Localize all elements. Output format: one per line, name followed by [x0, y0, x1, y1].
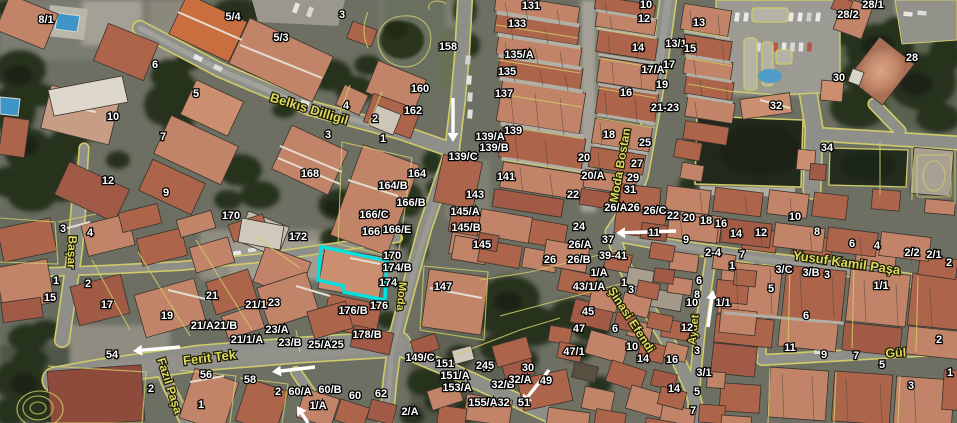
svg-text:1: 1: [621, 277, 627, 289]
svg-text:12: 12: [638, 13, 650, 25]
svg-text:2/A: 2/A: [401, 406, 418, 418]
svg-text:149/C: 149/C: [405, 352, 434, 364]
svg-text:153/A: 153/A: [442, 382, 471, 394]
svg-text:32/A: 32/A: [508, 374, 531, 386]
svg-text:10: 10: [107, 111, 119, 123]
svg-text:145: 145: [473, 239, 491, 251]
svg-text:21: 21: [206, 290, 218, 302]
svg-text:25: 25: [639, 137, 651, 149]
svg-text:56: 56: [200, 369, 212, 381]
svg-text:23/A: 23/A: [265, 324, 288, 336]
svg-text:51: 51: [518, 397, 530, 409]
svg-text:3: 3: [339, 9, 345, 21]
svg-text:4: 4: [874, 240, 881, 252]
svg-text:54: 54: [106, 349, 119, 361]
svg-text:139/C: 139/C: [448, 151, 477, 163]
svg-text:17: 17: [101, 299, 113, 311]
svg-text:1: 1: [53, 275, 59, 287]
svg-text:26/A: 26/A: [568, 239, 591, 251]
svg-text:16: 16: [620, 87, 632, 99]
svg-text:10: 10: [789, 211, 801, 223]
svg-text:1/1: 1/1: [715, 297, 730, 309]
svg-text:145/B: 145/B: [451, 222, 480, 234]
svg-text:172: 172: [289, 231, 307, 243]
svg-text:26/B: 26/B: [567, 254, 590, 266]
svg-text:164: 164: [408, 168, 427, 180]
svg-text:11: 11: [784, 342, 796, 354]
svg-text:28/2: 28/2: [837, 9, 858, 21]
svg-text:2/1: 2/1: [926, 249, 941, 261]
svg-text:14: 14: [632, 42, 645, 54]
svg-text:164/B: 164/B: [378, 180, 407, 192]
svg-text:6: 6: [849, 238, 855, 250]
svg-text:2/2: 2/2: [904, 247, 919, 259]
svg-text:30: 30: [833, 72, 845, 84]
svg-text:2: 2: [372, 113, 378, 125]
svg-text:15: 15: [684, 43, 696, 55]
svg-text:12: 12: [755, 227, 767, 239]
svg-text:137: 137: [495, 88, 513, 100]
svg-text:1/A: 1/A: [590, 267, 607, 279]
svg-text:30: 30: [522, 362, 534, 374]
svg-text:9: 9: [821, 349, 827, 361]
svg-text:19: 19: [656, 79, 668, 91]
svg-text:2: 2: [946, 257, 952, 269]
svg-text:Gül: Gül: [885, 345, 907, 360]
svg-text:1: 1: [380, 133, 386, 145]
svg-text:22: 22: [667, 210, 679, 222]
svg-text:141: 141: [497, 171, 515, 183]
svg-text:143: 143: [466, 189, 484, 201]
svg-text:178/B: 178/B: [352, 329, 381, 341]
svg-text:28: 28: [906, 52, 918, 64]
svg-text:3: 3: [325, 129, 331, 141]
svg-text:16: 16: [715, 218, 727, 230]
svg-text:15: 15: [44, 292, 56, 304]
svg-text:8: 8: [814, 226, 820, 238]
svg-text:158: 158: [439, 41, 457, 53]
svg-text:23/B: 23/B: [278, 337, 301, 349]
svg-text:3: 3: [628, 284, 634, 296]
svg-text:166: 166: [362, 226, 380, 238]
svg-text:5/4: 5/4: [225, 11, 241, 23]
svg-text:6: 6: [152, 59, 158, 71]
svg-text:2-4: 2-4: [705, 247, 722, 259]
svg-text:5: 5: [694, 386, 700, 398]
svg-text:151/A: 151/A: [440, 370, 469, 382]
svg-text:58: 58: [244, 374, 256, 386]
svg-text:21/1/A: 21/1/A: [231, 334, 263, 346]
svg-text:26/C: 26/C: [643, 205, 666, 217]
svg-text:27: 27: [631, 158, 643, 170]
svg-text:5: 5: [768, 283, 774, 295]
svg-text:20/A: 20/A: [581, 170, 604, 182]
svg-text:135/A: 135/A: [504, 49, 533, 61]
svg-text:4: 4: [343, 100, 350, 112]
svg-text:9: 9: [163, 187, 169, 199]
svg-text:9: 9: [683, 234, 689, 246]
svg-text:4: 4: [87, 227, 94, 239]
svg-text:7: 7: [690, 405, 696, 417]
svg-text:2: 2: [936, 334, 942, 346]
svg-text:16: 16: [666, 354, 678, 366]
svg-text:19: 19: [161, 310, 173, 322]
svg-text:176: 176: [370, 300, 388, 312]
svg-text:1/1: 1/1: [873, 280, 888, 292]
svg-text:21/A21/B: 21/A21/B: [191, 320, 238, 332]
svg-text:17: 17: [663, 59, 675, 71]
svg-text:14: 14: [668, 383, 681, 395]
svg-text:166/C: 166/C: [359, 209, 388, 221]
svg-text:2: 2: [148, 383, 154, 395]
svg-text:13: 13: [693, 17, 705, 29]
svg-text:166/E: 166/E: [383, 224, 412, 236]
svg-text:26: 26: [544, 254, 556, 266]
svg-text:43/1/A: 43/1/A: [573, 281, 605, 293]
svg-text:5: 5: [193, 88, 199, 100]
svg-text:8/1: 8/1: [38, 14, 53, 26]
svg-text:20: 20: [683, 212, 695, 224]
svg-text:1: 1: [947, 367, 953, 379]
svg-text:18: 18: [603, 129, 615, 141]
svg-text:2: 2: [275, 386, 281, 398]
svg-text:3/C: 3/C: [775, 264, 792, 276]
svg-text:1/A: 1/A: [309, 400, 326, 412]
svg-text:12: 12: [102, 175, 114, 187]
svg-text:174/B: 174/B: [382, 262, 411, 274]
svg-text:168: 168: [301, 168, 319, 180]
svg-text:3/B: 3/B: [802, 267, 819, 279]
svg-text:170: 170: [222, 210, 240, 222]
svg-text:37: 37: [602, 234, 614, 246]
svg-text:29: 29: [627, 172, 639, 184]
svg-text:26/A26: 26/A26: [604, 202, 639, 214]
svg-text:160: 160: [411, 83, 429, 95]
svg-text:155/A32: 155/A32: [468, 397, 510, 409]
svg-text:10: 10: [640, 0, 652, 11]
svg-text:21-23: 21-23: [651, 102, 679, 114]
svg-text:170: 170: [383, 250, 401, 262]
svg-text:139/B: 139/B: [479, 142, 508, 154]
svg-text:245: 245: [476, 360, 494, 372]
svg-text:60/B: 60/B: [318, 384, 341, 396]
svg-text:47/1: 47/1: [563, 346, 584, 358]
svg-text:49: 49: [540, 375, 552, 387]
svg-text:145/A: 145/A: [450, 206, 479, 218]
svg-text:5: 5: [879, 359, 885, 371]
svg-text:39-41: 39-41: [599, 250, 627, 262]
svg-text:1: 1: [198, 399, 204, 411]
svg-text:10: 10: [626, 341, 638, 353]
svg-text:31: 31: [624, 184, 636, 196]
svg-text:151: 151: [436, 358, 454, 370]
svg-text:62: 62: [375, 388, 387, 400]
svg-text:147: 147: [434, 281, 452, 293]
svg-text:1: 1: [729, 260, 735, 272]
svg-text:24: 24: [573, 221, 586, 233]
svg-text:133: 133: [508, 18, 526, 30]
svg-text:18: 18: [700, 215, 712, 227]
svg-text:6: 6: [803, 310, 809, 322]
svg-text:14: 14: [730, 228, 743, 240]
svg-text:60/A: 60/A: [288, 386, 311, 398]
svg-text:135: 135: [498, 66, 516, 78]
svg-text:28/1: 28/1: [862, 0, 883, 11]
svg-text:14: 14: [637, 353, 650, 365]
svg-text:22: 22: [567, 189, 579, 201]
svg-text:174: 174: [379, 277, 398, 289]
svg-text:162: 162: [404, 105, 422, 117]
svg-text:21/1: 21/1: [245, 299, 266, 311]
svg-text:47: 47: [573, 323, 585, 335]
svg-text:139: 139: [504, 125, 522, 137]
svg-text:34: 34: [821, 142, 834, 154]
svg-text:3: 3: [908, 380, 914, 392]
svg-text:131: 131: [522, 0, 540, 12]
svg-text:166/B: 166/B: [396, 197, 425, 209]
svg-text:7: 7: [160, 131, 166, 143]
svg-text:3/1: 3/1: [696, 367, 711, 379]
svg-text:176/B: 176/B: [338, 305, 367, 317]
svg-text:Başar: Başar: [64, 235, 79, 269]
svg-text:7: 7: [739, 249, 745, 261]
svg-text:23: 23: [268, 297, 280, 309]
svg-text:11: 11: [648, 227, 660, 239]
svg-text:25/A25: 25/A25: [308, 339, 343, 351]
svg-text:7: 7: [853, 350, 859, 362]
svg-text:5/3: 5/3: [273, 32, 288, 44]
svg-text:32: 32: [770, 100, 782, 112]
svg-text:6: 6: [696, 275, 702, 287]
svg-text:6: 6: [612, 323, 618, 335]
svg-text:3: 3: [694, 345, 700, 357]
svg-text:3: 3: [60, 223, 66, 235]
svg-text:8: 8: [694, 289, 700, 301]
svg-text:3: 3: [824, 269, 830, 281]
svg-text:60: 60: [349, 390, 361, 402]
svg-text:45: 45: [582, 306, 594, 318]
svg-text:17/A: 17/A: [641, 64, 664, 76]
svg-text:12: 12: [681, 322, 693, 334]
svg-text:20: 20: [578, 152, 590, 164]
svg-text:2: 2: [85, 278, 91, 290]
